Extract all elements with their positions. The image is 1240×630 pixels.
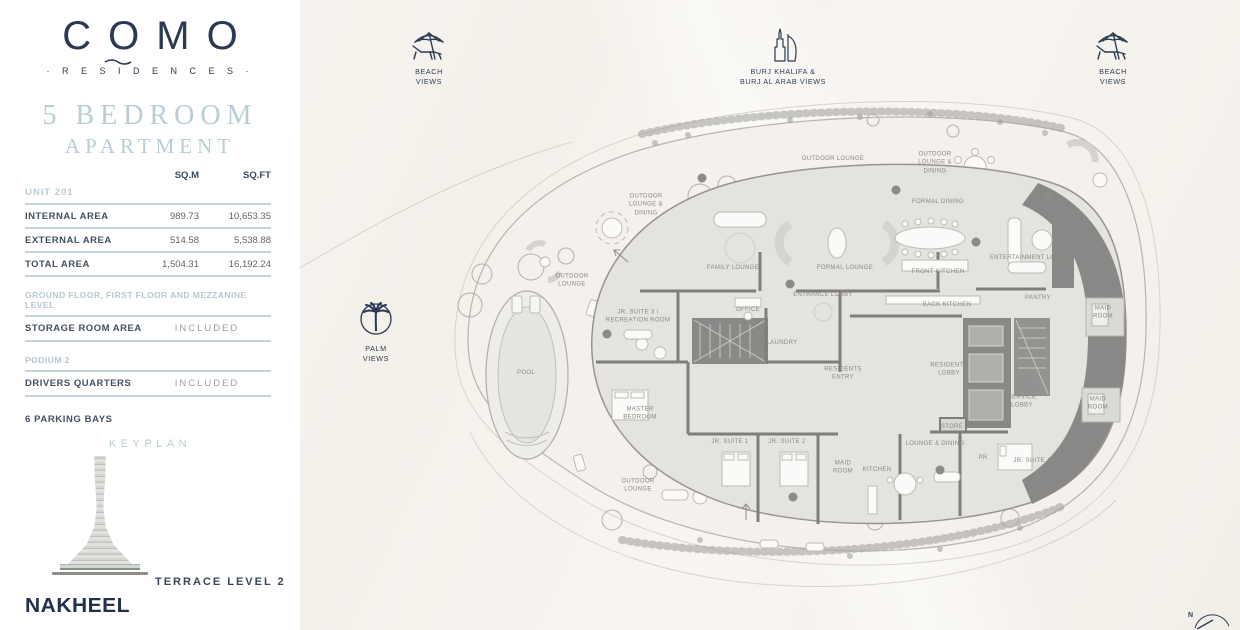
row-sqft: 5,538.88 [199,235,271,246]
row-label: TOTAL AREA [25,259,143,270]
view-marker-beach-right: BEACH VIEWS [1092,27,1134,88]
brand-tagline: · R E S I D E N C E S · [0,66,300,76]
storage-label: STORAGE ROOM AREA [25,323,143,334]
row-sqm: 1,504.31 [143,259,199,270]
nakheel-logo: NAKHEEL [25,594,130,617]
title-bedrooms: 5 BEDROOM [0,100,300,132]
section-header-podium: PODIUM 2 [25,355,271,365]
compass-n-label: N [1188,612,1193,619]
col-header-sqm: SQ.M [143,170,199,181]
view-marker-beach-left: BEACH VIEWS [408,27,450,88]
tower-ground [52,572,148,575]
keyplan-tower-illustration [58,456,142,578]
col-header-sqft: SQ.FT [199,170,271,181]
parking-note: 6 PARKING BAYS [25,414,271,425]
row-label: EXTERNAL AREA [25,235,143,246]
tower-body [58,456,142,564]
beach-umbrella-icon [1092,27,1134,63]
view-label: BURJ KHALIFA & BURJ AL ARAB VIEWS [740,67,826,88]
row-sqft: 16,192.24 [199,259,271,270]
brand-name: COMO [0,14,300,59]
drivers-row: DRIVERS QUARTERS INCLUDED [25,370,271,397]
beach-umbrella-icon [408,27,450,63]
floorplan-drawing [300,0,1240,630]
table-row: INTERNAL AREA 989.73 10,653.35 [25,203,271,227]
logo-wave-icon [103,58,133,66]
north-compass: N [1183,612,1235,630]
view-marker-palm: PALM VIEWS [356,300,396,365]
como-logo: COMO · R E S I D E N C E S · [0,14,300,76]
keyplan-level-caption: TERRACE LEVEL 2 [155,576,286,588]
area-table: SQ.M SQ.FT UNIT 201 INTERNAL AREA 989.73… [25,170,271,425]
unit-label: UNIT 201 [25,187,271,198]
title-apartment: APARTMENT [0,134,300,159]
section-header-ground-floor: GROUND FLOOR, FIRST FLOOR AND MEZZANINE … [25,290,271,310]
table-row: EXTERNAL AREA 514.58 5,538.88 [25,227,271,251]
palm-jumeirah-icon [356,300,396,340]
storage-row: STORAGE ROOM AREA INCLUDED [25,315,271,342]
keyplan-title: KEYPLAN [0,438,300,450]
burj-khalifa-burj-al-arab-icon [761,27,805,63]
view-marker-burj: BURJ KHALIFA & BURJ AL ARAB VIEWS [740,27,826,88]
tower-base [60,564,140,570]
view-label: PALM VIEWS [356,344,396,365]
table-row: TOTAL AREA 1,504.31 16,192.24 [25,251,271,275]
drivers-label: DRIVERS QUARTERS [25,378,143,389]
page-title: 5 BEDROOM APARTMENT [0,100,300,159]
sidebar: COMO · R E S I D E N C E S · 5 BEDROOM A… [0,0,300,630]
row-sqft: 10,653.35 [199,211,271,222]
drivers-value: INCLUDED [143,378,271,389]
row-sqm: 989.73 [143,211,199,222]
storage-value: INCLUDED [143,323,271,334]
view-label: BEACH VIEWS [408,67,450,88]
row-sqm: 514.58 [143,235,199,246]
view-label: BEACH VIEWS [1092,67,1134,88]
row-label: INTERNAL AREA [25,211,143,222]
area-rows: INTERNAL AREA 989.73 10,653.35 EXTERNAL … [25,203,271,277]
